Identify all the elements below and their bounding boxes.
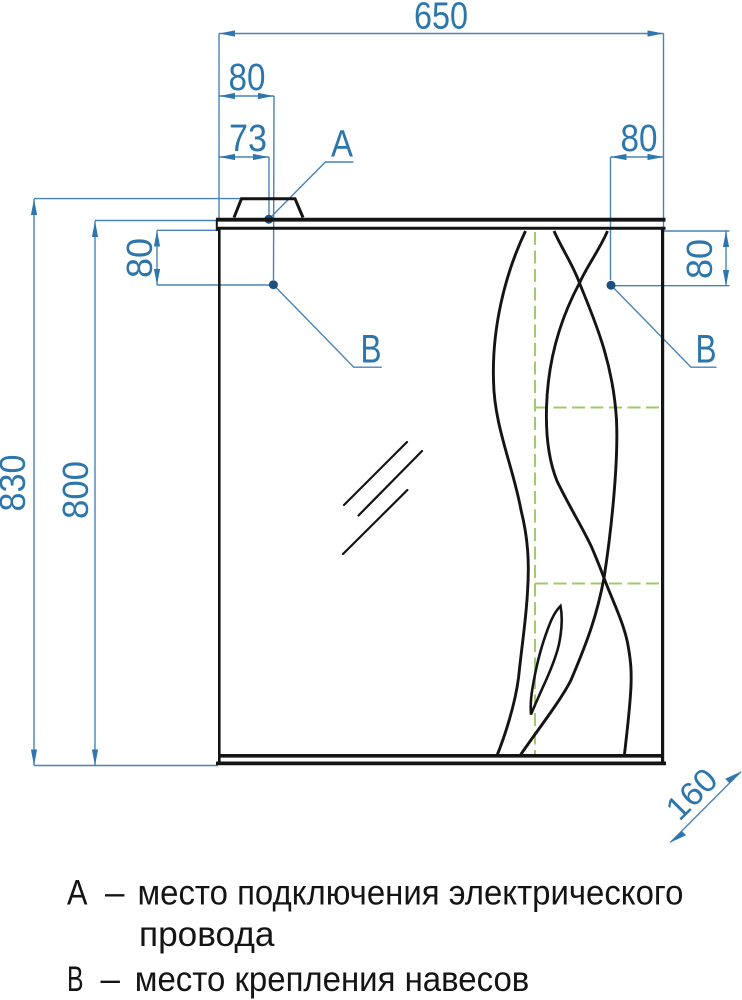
svg-text:73: 73 <box>229 118 267 160</box>
svg-text:А: А <box>67 874 88 913</box>
svg-text:место подключения электрическо: место подключения электрического <box>138 874 684 913</box>
svg-text:А: А <box>331 124 354 166</box>
svg-text:830: 830 <box>0 455 33 512</box>
svg-text:80: 80 <box>679 239 720 279</box>
svg-text:В: В <box>67 960 84 999</box>
svg-text:В: В <box>696 328 717 372</box>
svg-text:место крепления навесов: место крепления навесов <box>135 960 530 999</box>
svg-text:В: В <box>361 328 382 372</box>
svg-text:80: 80 <box>119 238 160 278</box>
svg-text:80: 80 <box>229 57 266 99</box>
svg-text:800: 800 <box>55 461 96 519</box>
svg-text:80: 80 <box>621 118 658 160</box>
svg-text:провода: провода <box>139 915 275 954</box>
svg-text:–: – <box>105 874 125 913</box>
svg-text:–: – <box>101 960 121 999</box>
svg-text:650: 650 <box>414 0 468 38</box>
